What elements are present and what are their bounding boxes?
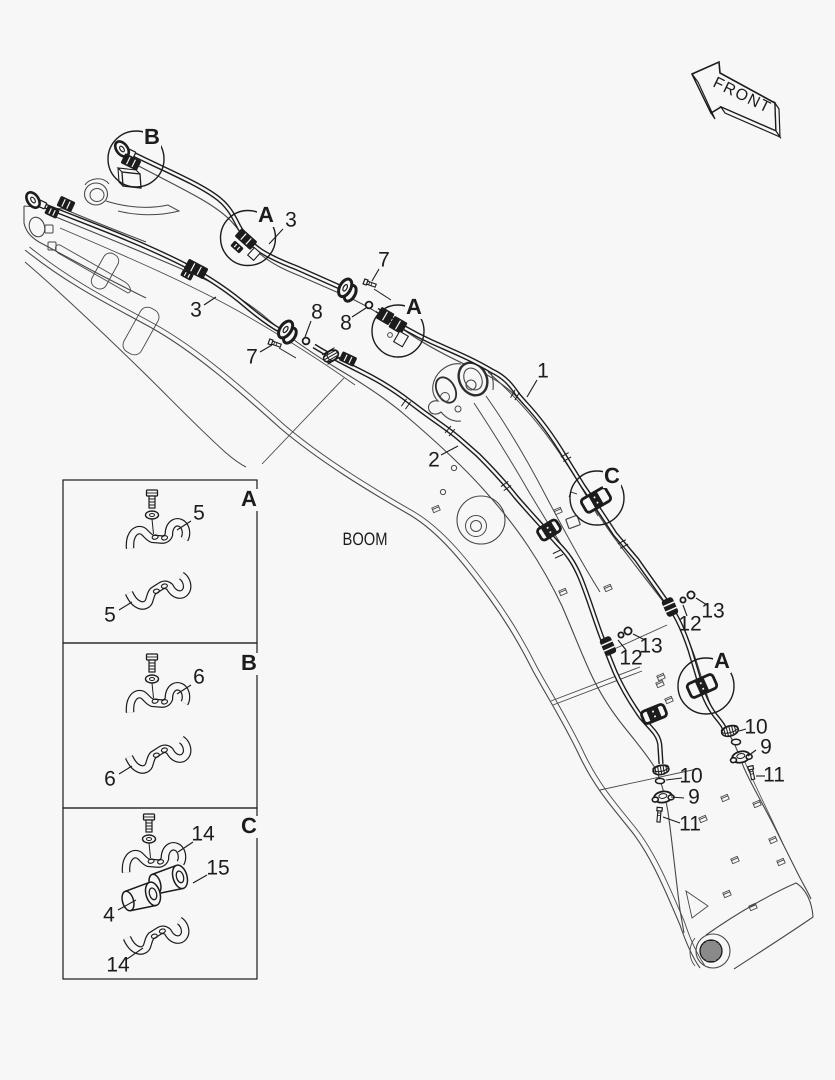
svg-text:15: 15 [206,857,229,880]
svg-text:6: 6 [193,666,205,689]
svg-text:5: 5 [193,502,205,525]
svg-text:BOOM: BOOM [343,529,388,549]
svg-text:7: 7 [246,346,258,369]
svg-text:11: 11 [679,813,701,836]
svg-text:2: 2 [428,449,440,472]
svg-text:9: 9 [688,786,700,809]
svg-text:7: 7 [378,249,390,272]
svg-text:A: A [714,648,730,673]
svg-text:1: 1 [537,360,549,383]
svg-text:8: 8 [340,312,352,335]
svg-text:4: 4 [103,904,115,927]
svg-text:6: 6 [104,768,116,791]
svg-text:C: C [604,463,620,488]
svg-text:B: B [144,124,160,149]
svg-text:12: 12 [678,613,701,636]
svg-text:10: 10 [679,765,702,788]
svg-text:5: 5 [104,604,116,627]
svg-text:11: 11 [763,764,785,787]
svg-text:9: 9 [760,736,772,759]
svg-text:13: 13 [639,635,662,658]
svg-text:A: A [258,202,274,227]
svg-text:14: 14 [191,823,215,846]
svg-text:3: 3 [285,209,297,232]
svg-text:8: 8 [311,301,323,324]
svg-text:A: A [406,294,422,319]
svg-text:A: A [241,486,257,511]
svg-text:14: 14 [106,954,130,977]
svg-text:C: C [241,813,257,838]
svg-text:B: B [241,650,257,675]
svg-text:3: 3 [190,299,202,322]
